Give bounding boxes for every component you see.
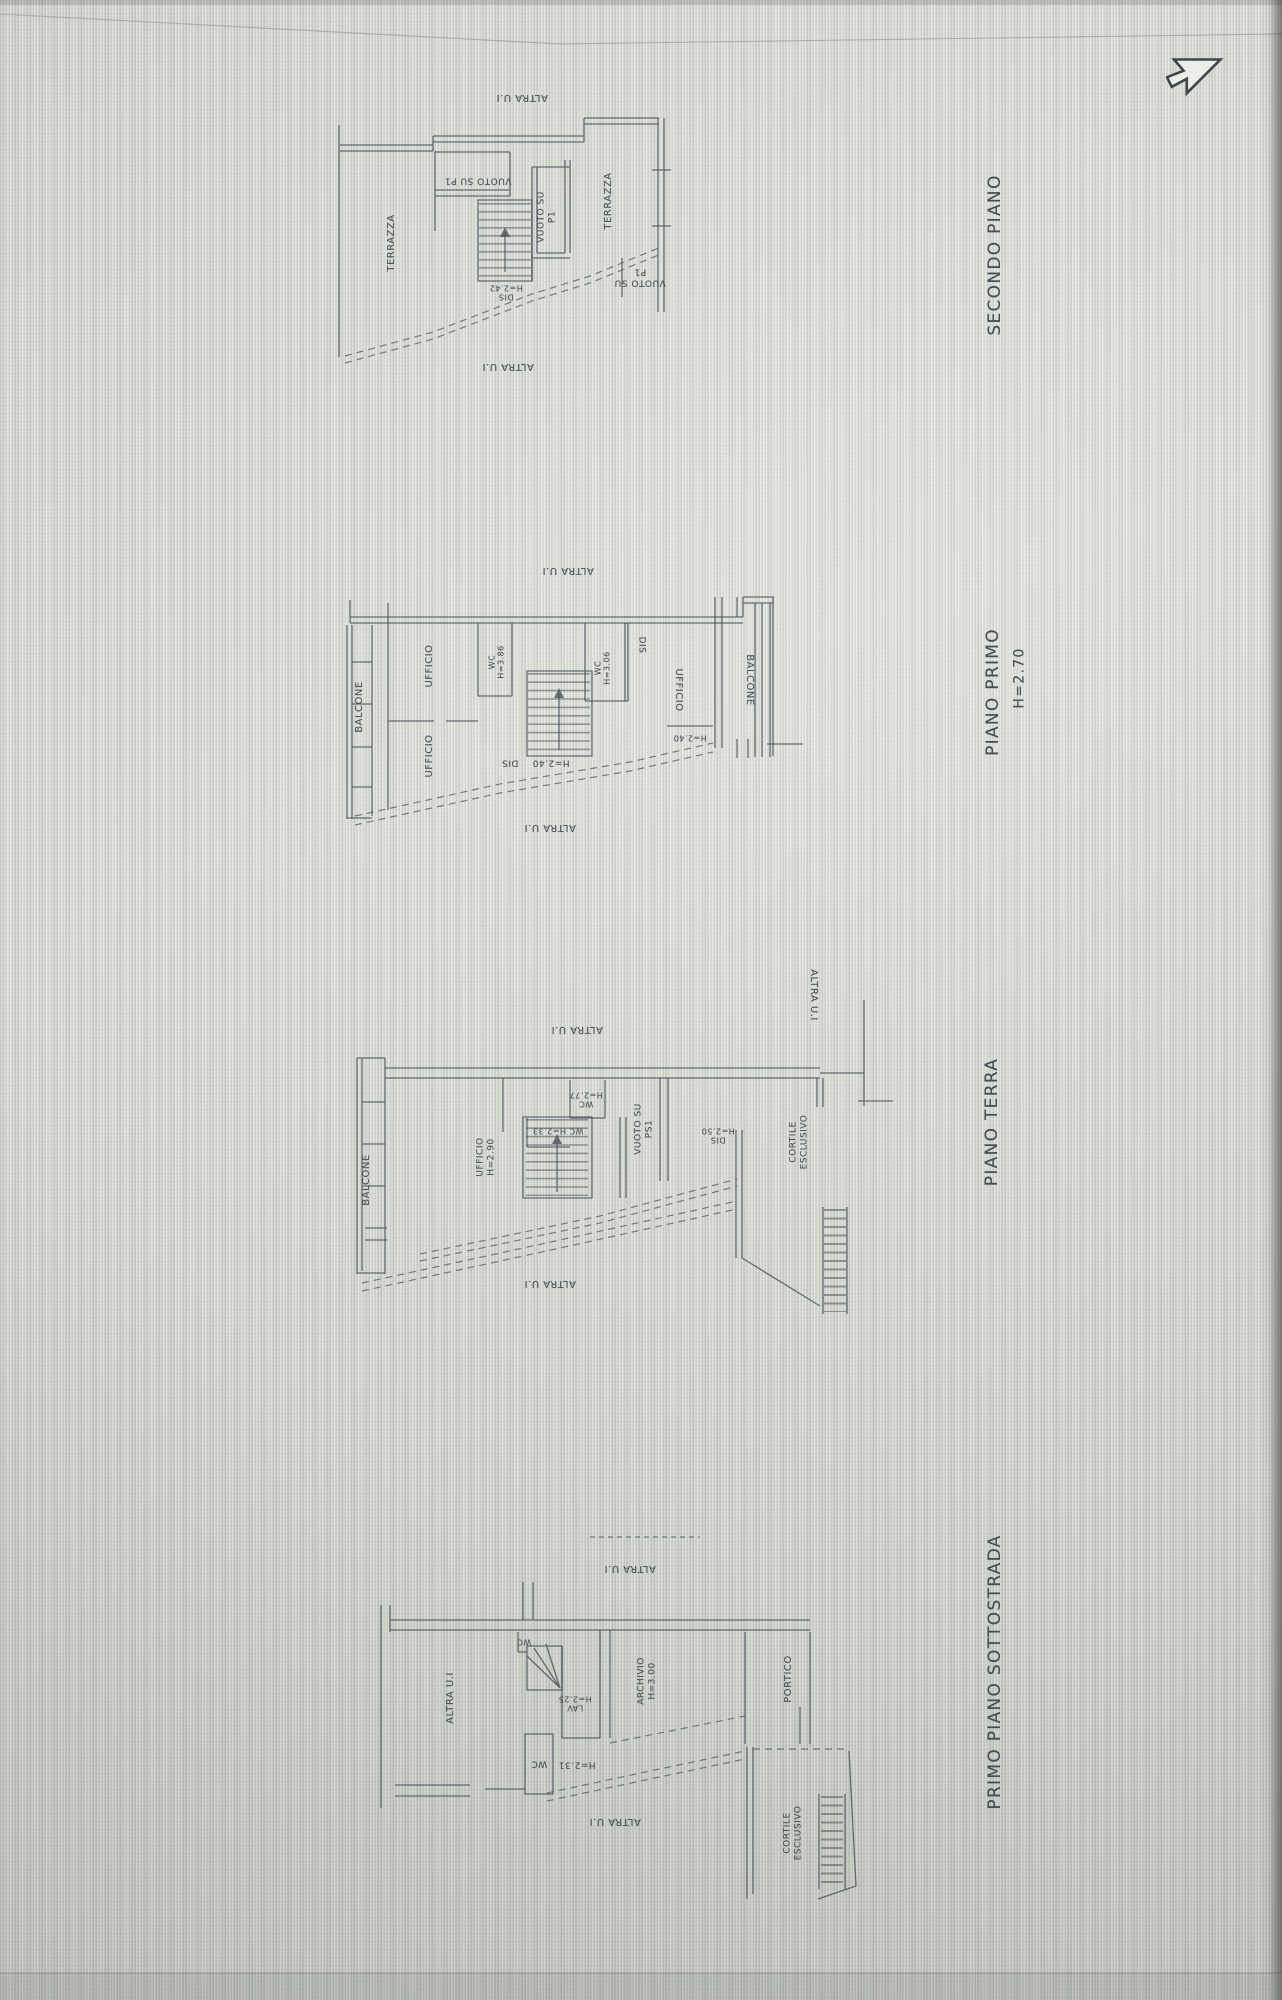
room-label: TERRAZZA xyxy=(603,172,615,229)
room-label: DIS xyxy=(502,757,519,768)
photo-edge-top xyxy=(0,0,1282,5)
room-label: VUOTO SU P1 xyxy=(614,266,666,287)
room-label: VUOTO SU P1 xyxy=(444,175,511,186)
boundary-label: ALTRA U.I xyxy=(542,564,594,576)
dim-label: DIS H=2.42 xyxy=(489,283,523,302)
boundary-label: ALTRA U.I xyxy=(551,1023,603,1035)
plan-title-primo-height: H=2.70 xyxy=(1012,647,1029,708)
screen-photo: SECONDO PIANOALTRA U.ITERRAZZAVUOTO SU P… xyxy=(0,0,1282,2000)
boundary-label: ALTRA U.I xyxy=(524,821,576,833)
room-label: UFFICIO xyxy=(424,644,436,687)
room-label: UFFICIO xyxy=(672,668,684,711)
dim-label: DIS H=2.50 xyxy=(701,1126,735,1145)
dim-label: H=2.31 xyxy=(558,1759,595,1770)
dim-label: H=2.40 xyxy=(673,733,707,742)
sheet-bottom-band xyxy=(0,1973,1282,2000)
room-label: ARCHIVIO H=3.00 xyxy=(636,1657,657,1705)
plan-title-terra: PIANO TERRA xyxy=(982,1058,1002,1186)
room-label: DIS xyxy=(636,637,647,654)
boundary-label: ALTRA U.I xyxy=(604,1562,656,1574)
dim-label: WC H=3.86 xyxy=(488,645,507,679)
floorplan-sheet: SECONDO PIANOALTRA U.ITERRAZZAVUOTO SU P… xyxy=(0,0,1282,2000)
boundary-label: ALTRA U.I xyxy=(482,360,534,372)
boundary-label: ALTRA U.I xyxy=(524,1277,576,1289)
room-label: BALCONE xyxy=(354,681,366,732)
room-label: BALCONE xyxy=(743,654,755,705)
room-label: WC xyxy=(531,1758,547,1769)
room-label: VUOTO SU PS1 xyxy=(633,1103,654,1155)
room-label: UFFICIO H=2.90 xyxy=(475,1137,496,1176)
room-label: WC xyxy=(517,1637,532,1646)
room-label: UFFICIO xyxy=(424,734,436,777)
room-label: VUOTO SU P1 xyxy=(536,191,557,243)
room-label: BALCONE xyxy=(361,1154,373,1205)
dim-label: H=2.40 xyxy=(532,757,569,768)
boundary-label: ALTRA U.I xyxy=(807,969,819,1021)
plan-title-sottostrada: PRIMO PIANO SOTTOSTRADA xyxy=(985,1534,1005,1809)
room-label: CORTILE ESCLUSIVO xyxy=(788,1115,809,1170)
plan-title-primo: PIANO PRIMO xyxy=(983,628,1003,756)
plan-terra-lines xyxy=(357,1000,893,1314)
boundary-label: ALTRA U.I xyxy=(589,1815,641,1827)
room-label: CORTILE ESCLUSIVO xyxy=(782,1806,803,1861)
dim-label: WC H=2.77 xyxy=(569,1090,603,1109)
room-label: TERRAZZA xyxy=(386,214,398,271)
boundary-label: ALTRA U.I xyxy=(445,1672,457,1724)
boundary-label: ALTRA U.I xyxy=(496,91,548,103)
plan-title-secondo: SECONDO PIANO xyxy=(985,174,1005,335)
dim-label: WC H=3.06 xyxy=(594,651,613,685)
dim-label: LAV H=2.25 xyxy=(558,1694,592,1713)
plan-primo-lines xyxy=(347,597,803,825)
mouse-cursor-icon[interactable] xyxy=(1166,58,1226,100)
room-label: PORTICO xyxy=(783,1655,795,1703)
screen-edge xyxy=(1266,0,1282,2000)
dim-label: WC H=2.33 xyxy=(532,1126,583,1135)
